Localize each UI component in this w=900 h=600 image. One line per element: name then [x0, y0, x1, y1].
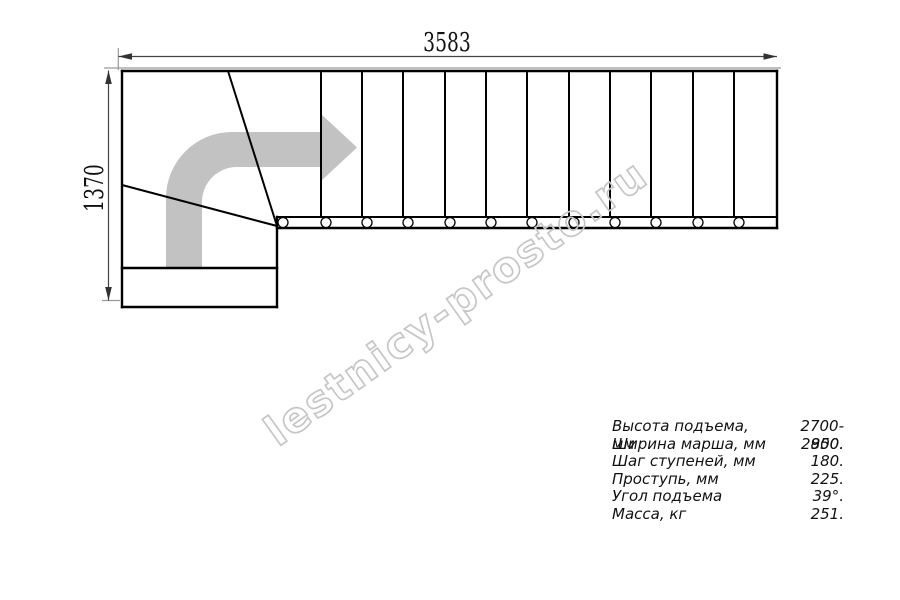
spec-row: Масса, кг 251.: [612, 506, 844, 524]
spec-label: Угол подъема: [612, 488, 722, 506]
drawing-canvas: 3583 1370 lestnicy-prosto.ru Высота подъ…: [0, 0, 900, 600]
spec-value: 251.: [811, 506, 844, 524]
plan-outline: [122, 71, 777, 307]
top-dimension-label: 3583: [423, 28, 471, 58]
spec-row: Шаг ступеней, мм 180.: [612, 453, 844, 471]
spec-label: Проступь, мм: [612, 471, 719, 489]
spec-label: Шаг ступеней, мм: [612, 453, 756, 471]
spec-row: Проступь, мм 225.: [612, 471, 844, 489]
spec-value: 900.: [811, 436, 844, 454]
spec-value: 180.: [811, 453, 844, 471]
spec-row: Угол подъема 39°.: [612, 488, 844, 506]
spec-value: 39°.: [813, 488, 844, 506]
specs-table: Высота подъема, мм 2700-2850. Ширина мар…: [612, 418, 844, 523]
spec-label: Масса, кг: [612, 506, 686, 524]
stringer-circles: [278, 218, 744, 228]
spec-row: Высота подъема, мм 2700-2850.: [612, 418, 844, 436]
left-dimension-label: 1370: [80, 164, 110, 212]
spec-label: Ширина марша, мм: [612, 436, 766, 454]
direction-arrow: [166, 113, 357, 268]
spec-value: 225.: [811, 471, 844, 489]
